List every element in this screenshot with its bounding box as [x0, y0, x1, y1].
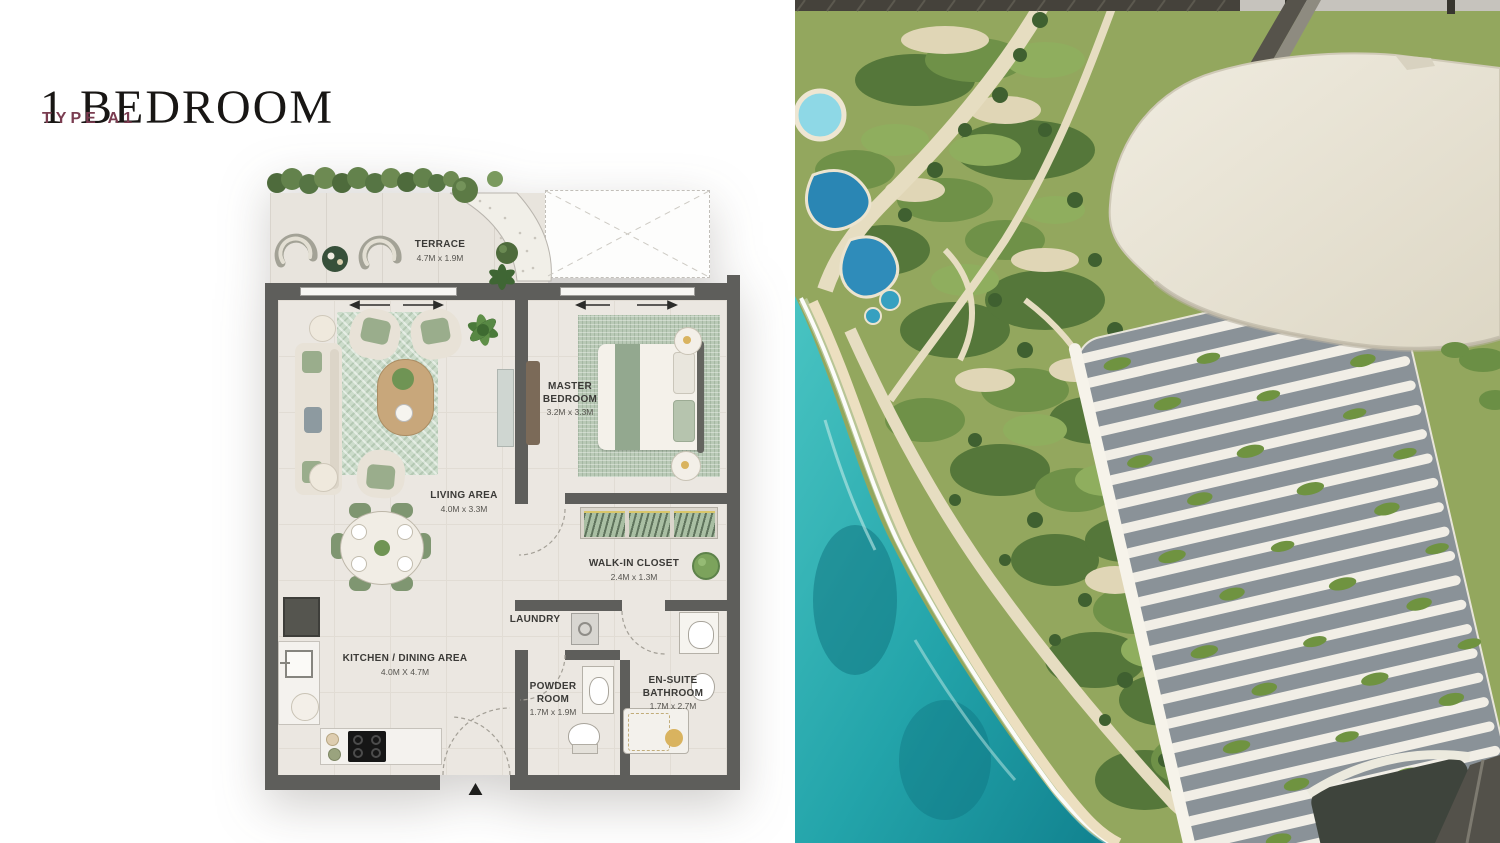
room-dims: 4.0M x 3.3M — [414, 504, 514, 515]
room-dims: 2.4M x 1.3M — [584, 572, 684, 583]
room-dims: 1.7M x 1.9M — [522, 707, 584, 718]
room-label-living-area: LIVING AREA 4.0M x 3.3M — [414, 490, 514, 514]
room-label-powder-room: POWDER ROOM 1.7M x 1.9M — [522, 681, 584, 718]
brochure-page: 1 BEDROOM TYPE A1 — [0, 0, 1500, 843]
room-name: TERRACE — [390, 239, 490, 252]
room-label-laundry: LAUNDRY — [500, 614, 570, 627]
room-label-kitchen: KITCHEN / DINING AREA 4.0M X 4.7M — [325, 653, 485, 677]
room-name: POWDER ROOM — [522, 681, 584, 706]
entrance-arrow-icon — [468, 783, 483, 795]
plant-icon — [466, 313, 500, 347]
floor-plan: TERRACE 4.7M x 1.9M MASTER BEDROOM 3.2M … — [265, 163, 743, 795]
room-dims: 1.7M x 2.7M — [633, 701, 713, 712]
room-dims: 3.2M x 3.3M — [530, 407, 610, 418]
room-name: MASTER BEDROOM — [530, 381, 610, 406]
room-name: KITCHEN / DINING AREA — [325, 653, 485, 666]
room-label-terrace: TERRACE 4.7M x 1.9M — [390, 239, 490, 263]
closet-plant-icon — [693, 553, 719, 579]
room-label-master-bedroom: MASTER BEDROOM 3.2M x 3.3M — [530, 381, 610, 418]
door-swing-arcs — [443, 509, 665, 775]
door-arrows — [351, 302, 676, 309]
room-dims: 4.7M x 1.9M — [390, 253, 490, 264]
room-name: LIVING AREA — [414, 490, 514, 503]
void-cross — [546, 191, 709, 277]
room-name: WALK-IN CLOSET — [584, 558, 684, 571]
room-name: EN-SUITE BATHROOM — [633, 675, 713, 700]
unit-type-label: TYPE A1 — [42, 110, 136, 128]
room-label-ensuite: EN-SUITE BATHROOM 1.7M x 2.7M — [633, 675, 713, 712]
room-label-walk-in-closet: WALK-IN CLOSET 2.4M x 1.3M — [584, 558, 684, 582]
aerial-photo — [795, 0, 1500, 843]
room-dims: 4.0M X 4.7M — [325, 667, 485, 678]
terrace-table-icon — [322, 246, 348, 272]
room-name: LAUNDRY — [500, 614, 570, 627]
